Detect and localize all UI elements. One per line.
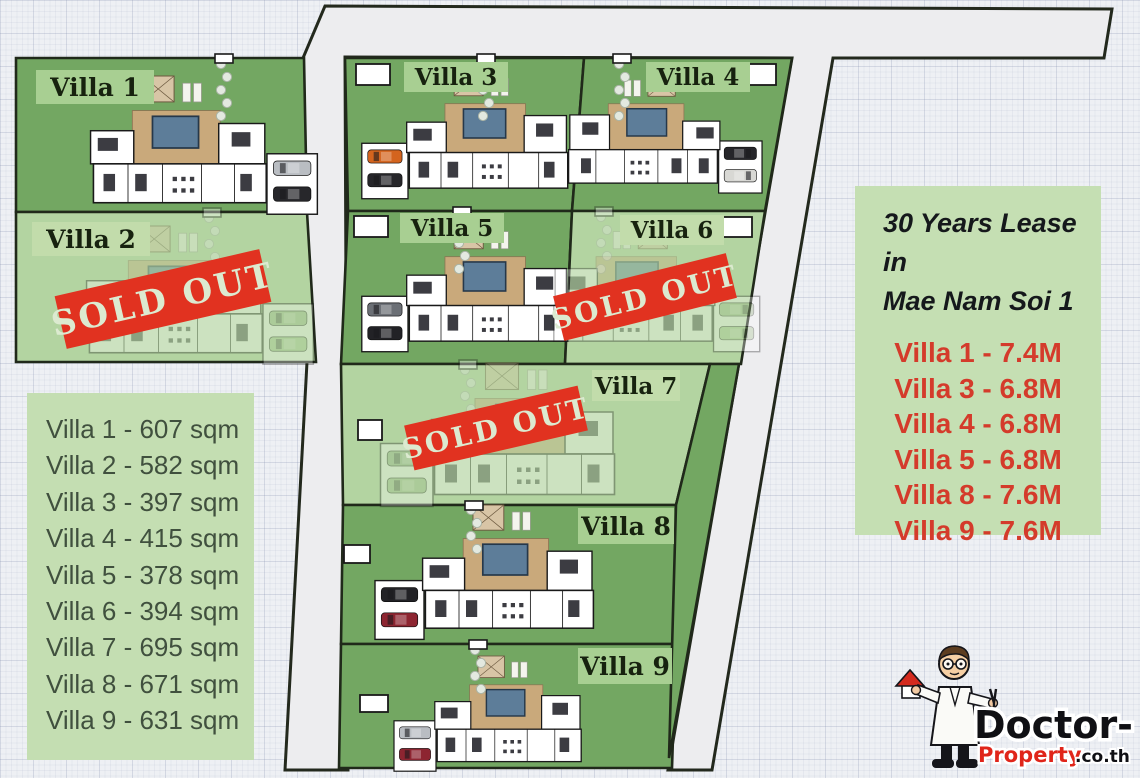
villa-sizes-legend: Villa 1 - 607 sqm Villa 2 - 582 sqm Vill…: [27, 393, 254, 760]
price-row: Villa 5 - 6.8M: [855, 442, 1101, 478]
price-row: Villa 8 - 7.6M: [855, 477, 1101, 513]
svg-text:Villa 2: Villa 2: [45, 225, 136, 254]
svg-text:Villa 7: Villa 7: [594, 373, 678, 400]
villa-1-label: Villa 1: [36, 70, 154, 104]
logo-brand-red: Property: [978, 743, 1082, 767]
svg-text:Villa 8: Villa 8: [580, 512, 671, 541]
legend-row: Villa 8 - 671 sqm: [46, 666, 254, 702]
price-row: Villa 1 - 7.4M: [855, 335, 1101, 371]
price-row: Villa 9 - 7.6M: [855, 513, 1101, 549]
villa-5-label: Villa 5: [400, 213, 504, 243]
utility-pad: [722, 217, 752, 237]
legend-row: Villa 5 - 378 sqm: [46, 557, 254, 593]
logo-brand-black: Doctor-: [974, 703, 1133, 747]
legend-row: Villa 7 - 695 sqm: [46, 629, 254, 665]
price-row: Villa 3 - 6.8M: [855, 371, 1101, 407]
villa-9-label: Villa 9: [578, 648, 672, 684]
legend-row: Villa 4 - 415 sqm: [46, 520, 254, 556]
logo-brand-suffix: .co.th: [1075, 747, 1130, 767]
legend-row: Villa 2 - 582 sqm: [46, 447, 254, 483]
villa-7-label: Villa 7: [592, 370, 680, 401]
price-panel: 30 Years Lease in Mae Nam Soi 1 Villa 1 …: [855, 186, 1101, 535]
villa-4-label: Villa 4: [646, 62, 750, 92]
villa-3-label: Villa 3: [404, 62, 508, 92]
legend-row: Villa 6 - 394 sqm: [46, 593, 254, 629]
doctor-property-logo: Doctor- Property .co.th: [896, 646, 1133, 768]
svg-text:Villa 3: Villa 3: [414, 64, 498, 91]
svg-text:Villa 6: Villa 6: [630, 217, 714, 244]
price-panel-title-line2: Mae Nam Soi 1: [855, 282, 1101, 321]
legend-row: Villa 1 - 607 sqm: [46, 411, 254, 447]
utility-pad: [356, 64, 390, 85]
svg-text:Villa 1: Villa 1: [49, 73, 140, 102]
utility-pad: [360, 695, 388, 712]
legend-row: Villa 3 - 397 sqm: [46, 484, 254, 520]
utility-pad: [344, 545, 370, 563]
villa-2-label: Villa 2: [32, 222, 150, 256]
price-row: Villa 4 - 6.8M: [855, 406, 1101, 442]
legend-row: Villa 9 - 631 sqm: [46, 702, 254, 738]
villa-8-label: Villa 8: [578, 508, 674, 544]
villa-6-label: Villa 6: [620, 215, 724, 245]
svg-text:Villa 4: Villa 4: [656, 64, 740, 91]
utility-pad: [354, 216, 388, 237]
svg-text:Villa 9: Villa 9: [579, 652, 670, 681]
price-panel-title-line1: 30 Years Lease in: [855, 204, 1101, 282]
utility-pad: [358, 420, 382, 440]
svg-text:Villa 5: Villa 5: [410, 215, 494, 242]
